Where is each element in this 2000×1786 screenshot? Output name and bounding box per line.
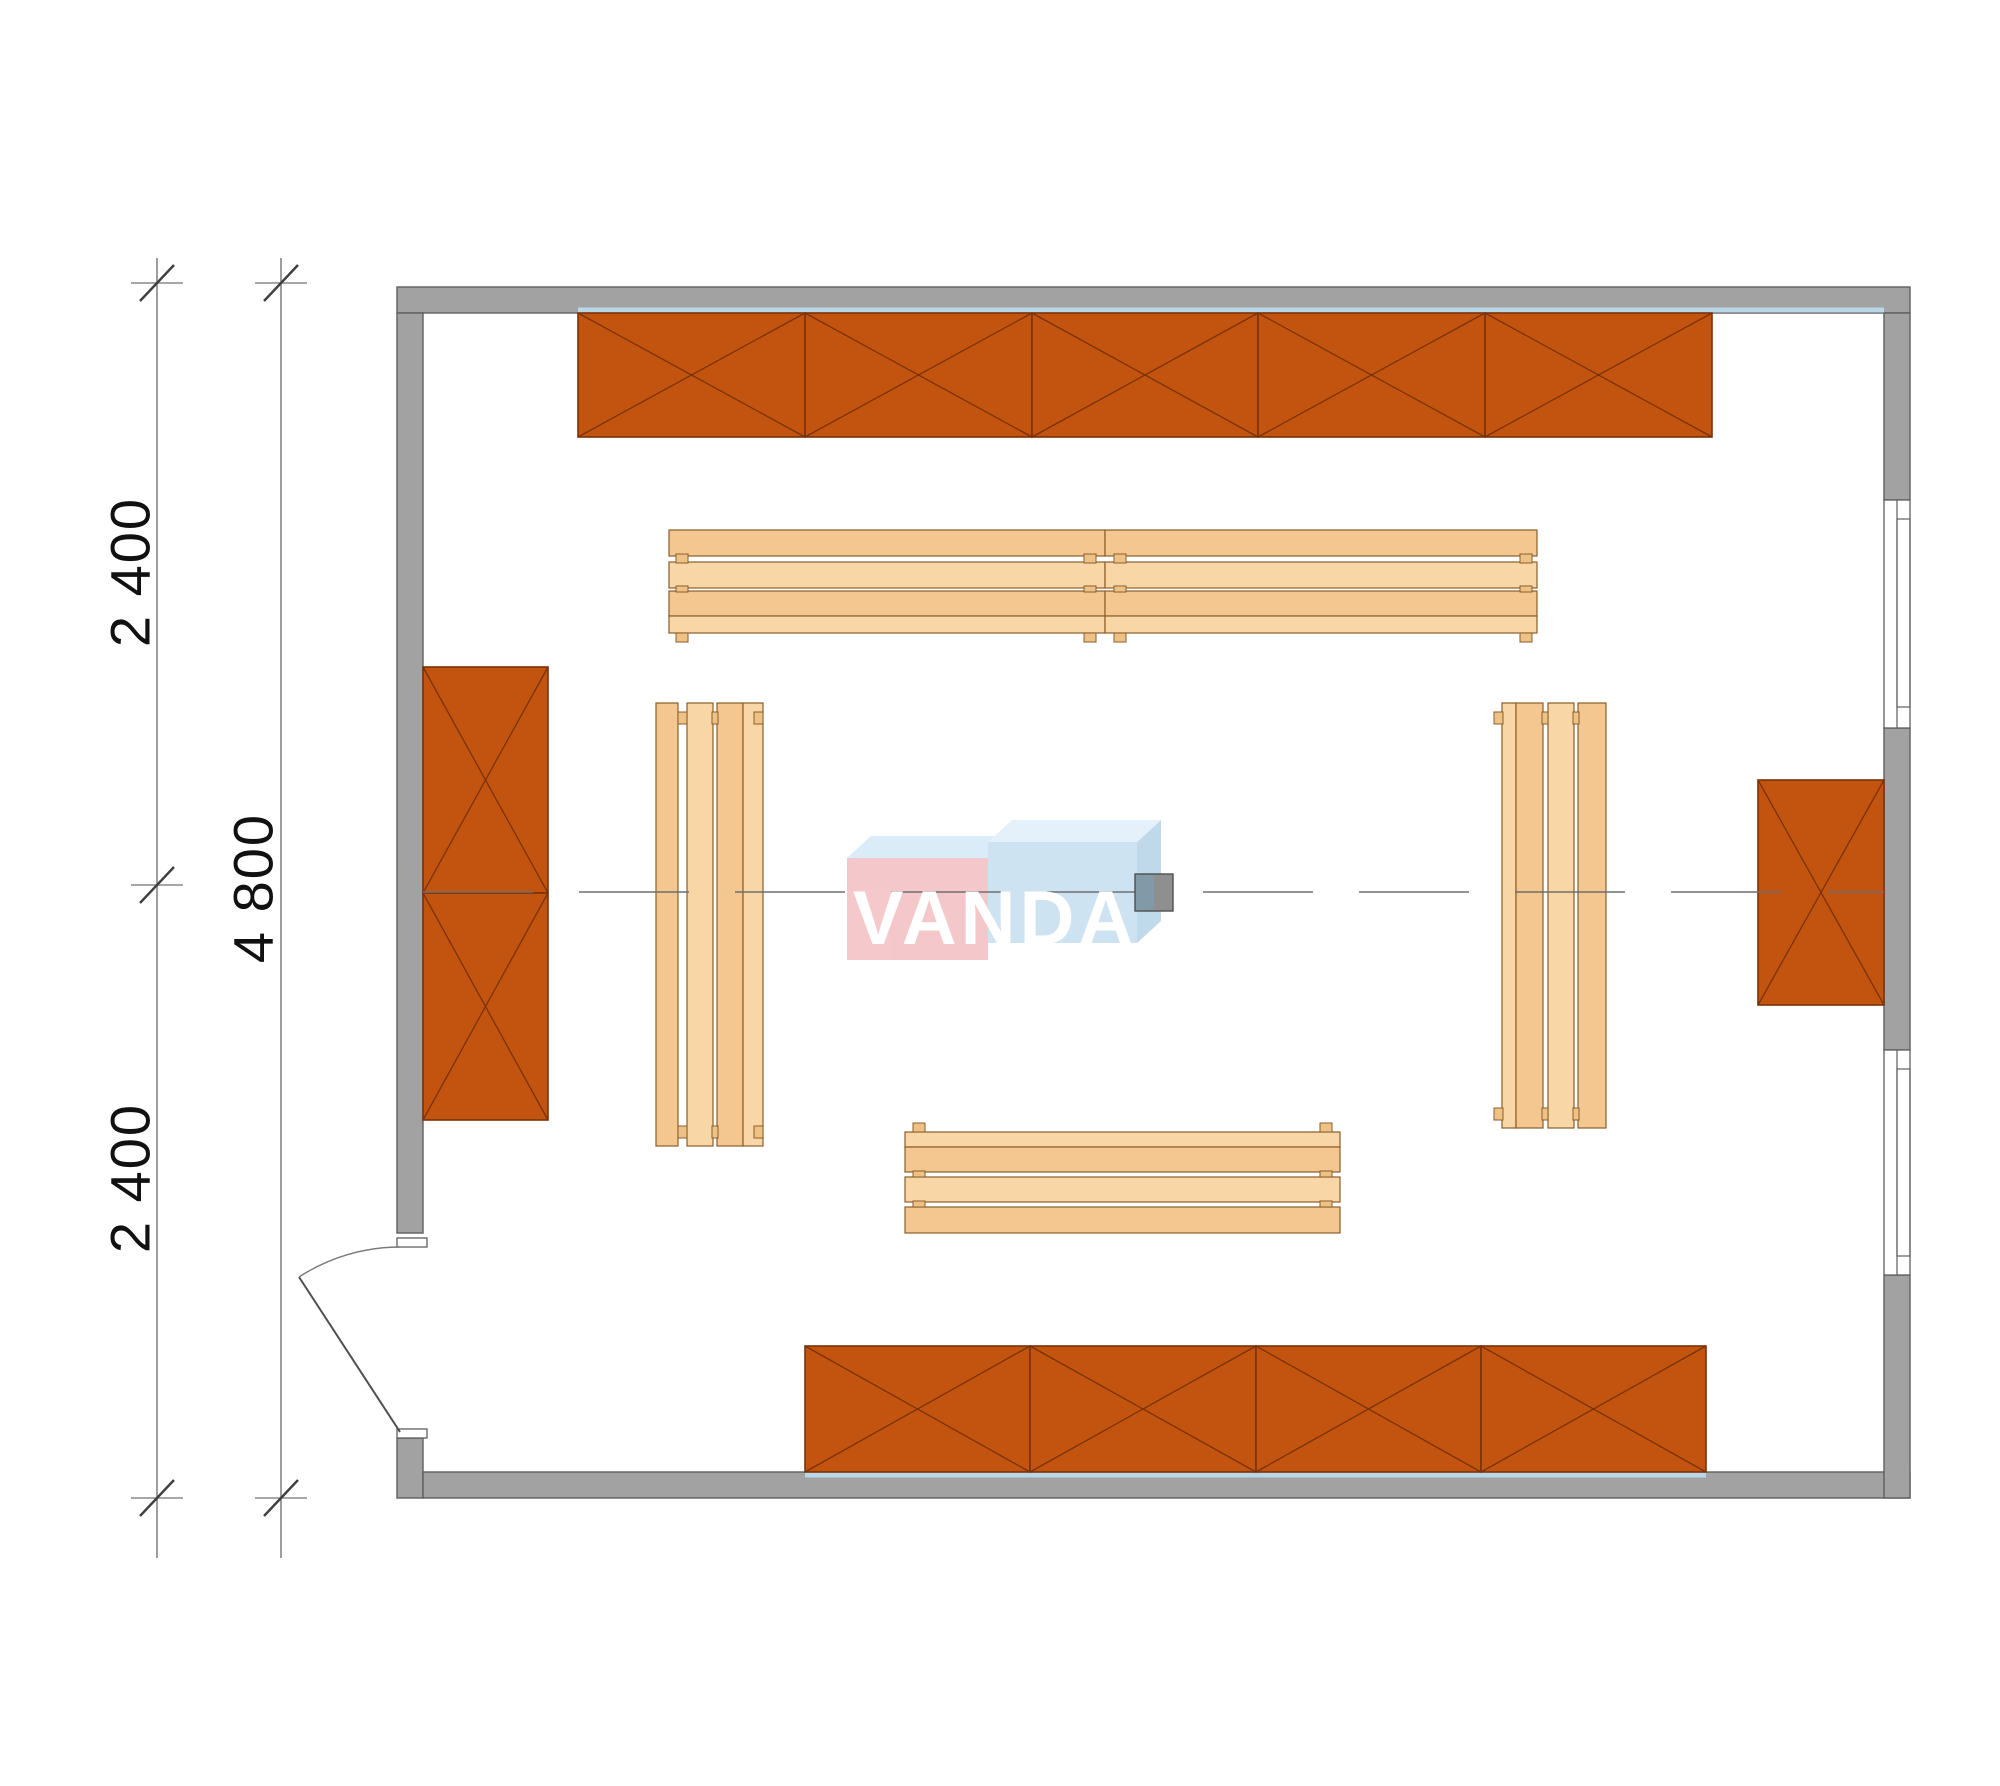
door-bottom-left [299,1238,427,1438]
x-brace-section [578,313,805,437]
bench-top-left [669,530,1105,642]
dimension-lines: 2 400 4 800 2 400 [99,258,308,1558]
wall-right-middle [1884,728,1910,1050]
x-brace-section [1258,313,1485,437]
bench-top-right [1105,530,1537,642]
shelf-top [578,313,1712,437]
x-brace-section [1256,1346,1481,1472]
watermark-text: VANDA [853,876,1138,961]
window-lower [1884,1050,1910,1275]
shelf-left [423,667,548,1120]
x-brace-section [423,667,548,893]
wall-left [397,313,423,1233]
wall-right-upper [1884,313,1910,500]
center-post [1135,874,1173,911]
x-brace-section [1030,1346,1256,1472]
door-leaf [299,1277,400,1432]
wall-right-lower [1884,1275,1910,1498]
floor-plan-canvas: VANDA 2 400 4 800 2 400 [0,0,2000,1786]
door-swing-arc [299,1247,400,1277]
watermark-box-pink-top [847,836,1012,858]
bench-right [1494,703,1606,1128]
dimension-label-bottom: 2 400 [99,1103,162,1253]
dimension-label-overall: 4 800 [222,813,285,963]
x-brace-section [1032,313,1258,437]
shelf-bottom [805,1346,1706,1472]
door-jamb-top [397,1238,427,1247]
bench-bottom [905,1123,1340,1233]
x-brace-section [805,1346,1030,1472]
x-brace-section [423,893,548,1120]
dimension-label-top: 2 400 [99,497,162,647]
window-upper [1884,500,1910,728]
x-brace-section [805,313,1032,437]
x-brace-section [1485,313,1712,437]
door-jamb-bottom [397,1429,427,1438]
floor-plan-svg: VANDA 2 400 4 800 2 400 [0,0,2000,1786]
watermark-box-blue-top [988,820,1161,842]
wall-left-stub [397,1438,423,1498]
x-brace-section [1481,1346,1706,1472]
bench-left [656,703,763,1146]
